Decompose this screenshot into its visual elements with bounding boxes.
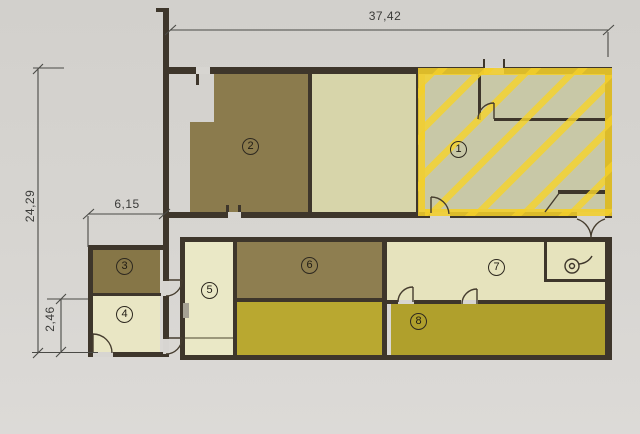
dimension-left-height: 24,29	[23, 184, 39, 228]
room-label-7: 7	[488, 259, 505, 276]
wall-segment	[605, 237, 612, 360]
wall-segment	[93, 293, 161, 296]
wall-segment	[226, 205, 229, 212]
wall-segment	[180, 237, 612, 242]
room-4-fill	[93, 296, 160, 352]
room-label-2: 2	[242, 138, 259, 155]
room-number: 5	[206, 285, 212, 296]
room-label-6: 6	[301, 257, 318, 274]
wall-segment	[386, 300, 607, 304]
room-unlabeled-fill	[312, 74, 416, 212]
dimension-top-width: 37,42	[352, 9, 418, 23]
dimension-annex-width: 6,15	[103, 197, 151, 211]
floor-plan-canvas: 1 2 3 4 5 6 7 8 37,42 24,29 6,15 2,46	[0, 0, 640, 434]
room-number: 3	[121, 261, 127, 272]
wall-segment	[483, 59, 485, 68]
room-label-5: 5	[201, 282, 218, 299]
room-label-4: 4	[116, 306, 133, 323]
room-label-1: 1	[450, 141, 467, 158]
room-number: 2	[247, 141, 253, 152]
wall-segment	[180, 237, 185, 360]
wall-segment	[238, 205, 241, 212]
door-opening	[93, 352, 113, 357]
room-2-fill	[190, 122, 308, 212]
wall-segment	[163, 8, 169, 357]
door-opening	[196, 67, 210, 74]
room-1-highlight-hatch	[418, 68, 612, 216]
wall-segment	[180, 355, 612, 360]
wall-segment	[308, 73, 312, 212]
wall-segment	[237, 298, 386, 302]
dimension-annex-height: 2,46	[43, 297, 59, 341]
room-8-left-fill	[237, 302, 382, 355]
room-number: 7	[493, 262, 499, 273]
room-number: 6	[306, 260, 312, 271]
wall-segment	[88, 245, 165, 250]
door-opening	[461, 300, 478, 304]
room-number: 8	[415, 316, 421, 327]
wall-segment	[196, 74, 199, 85]
door-opening	[163, 281, 169, 296]
wall-segment	[544, 242, 547, 282]
room-number: 1	[455, 144, 461, 155]
room-label-3: 3	[116, 258, 133, 275]
partition-line	[185, 337, 233, 339]
wall-segment	[503, 59, 505, 68]
room-2-fill-upper	[214, 74, 308, 122]
door-opening	[163, 339, 169, 354]
room-8-fill	[391, 304, 605, 355]
door-opening	[228, 212, 241, 218]
radiator-mark	[183, 303, 189, 318]
wall-segment	[382, 242, 387, 357]
wall-segment	[88, 245, 93, 357]
room-number: 4	[121, 309, 127, 320]
wall-segment	[544, 279, 607, 282]
door-opening	[398, 300, 414, 304]
room-label-8: 8	[410, 313, 427, 330]
